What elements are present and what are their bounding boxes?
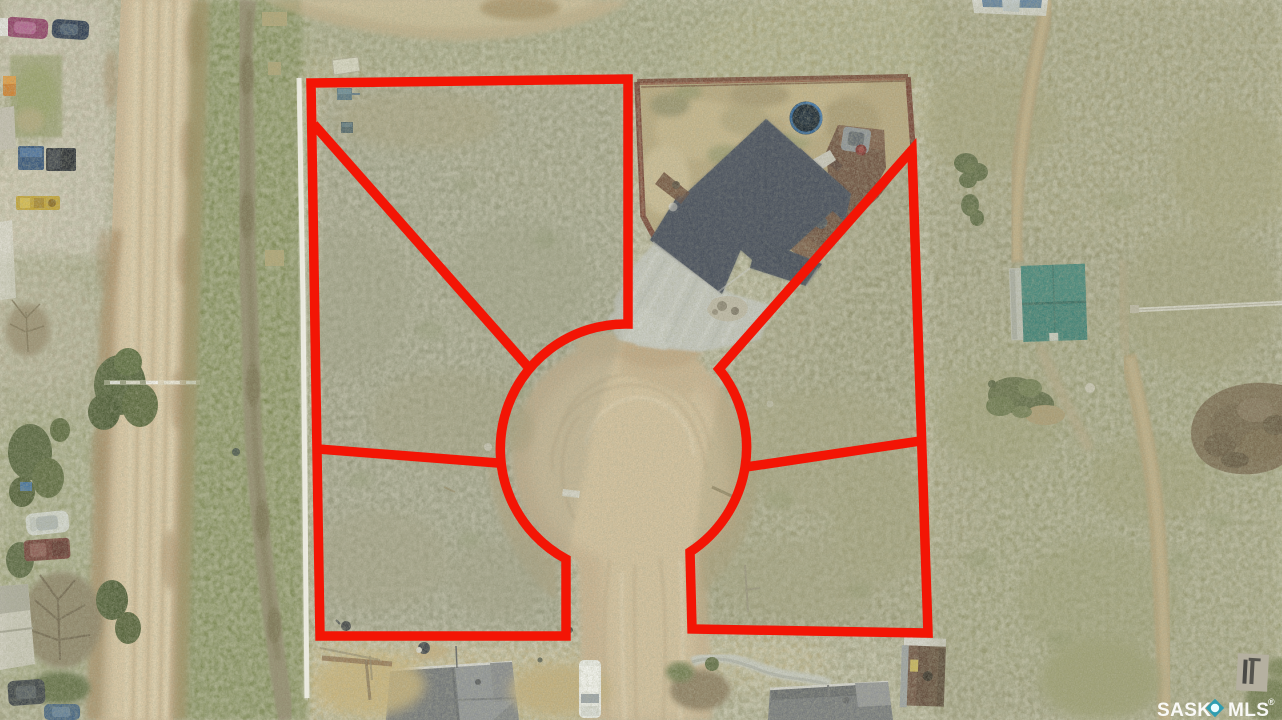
- svg-text:MLS: MLS: [1228, 700, 1269, 720]
- svg-text:SASK: SASK: [1157, 700, 1211, 720]
- svg-text:®: ®: [1268, 697, 1275, 707]
